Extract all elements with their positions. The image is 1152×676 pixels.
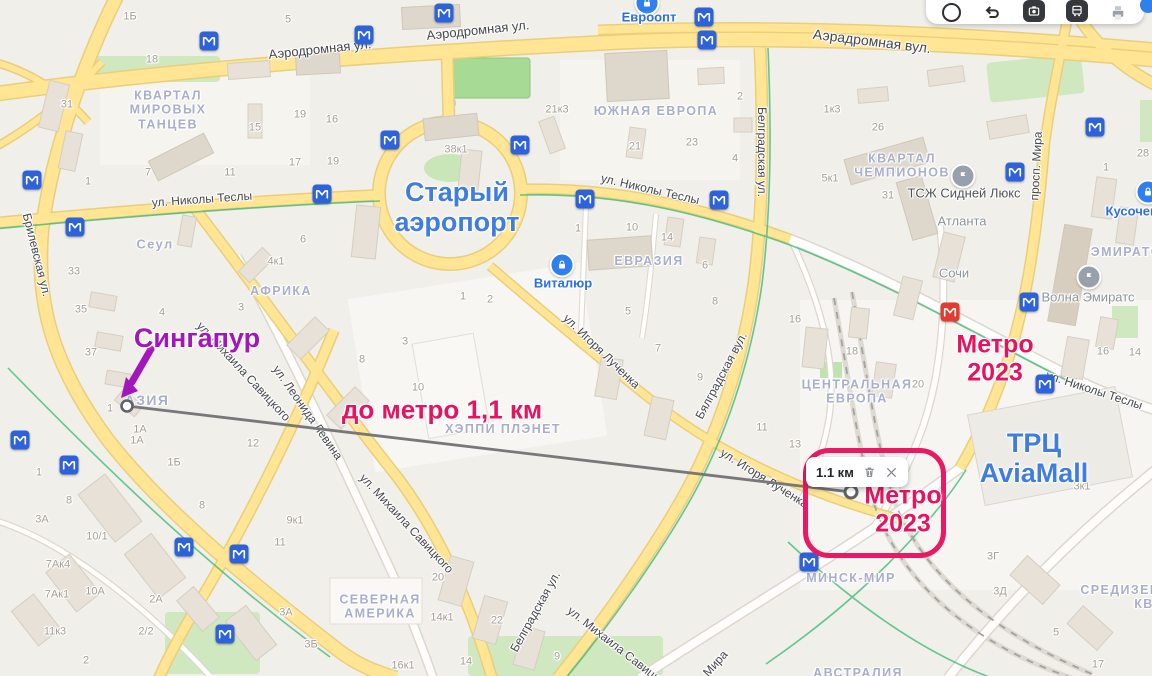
close-icon[interactable] — [885, 466, 898, 479]
panorama-icon[interactable] — [1023, 0, 1045, 22]
metro-icon[interactable] — [1036, 375, 1055, 394]
flag-icon[interactable] — [1077, 265, 1102, 290]
metro-icon[interactable] — [313, 185, 332, 204]
metro-icon[interactable] — [216, 625, 235, 644]
metro-icon[interactable] — [381, 131, 400, 150]
ruler-distance: 1.1 км — [816, 465, 854, 480]
flag-icon[interactable] — [951, 164, 976, 189]
routes-icon[interactable] — [981, 2, 1003, 22]
metro-icon[interactable] — [698, 31, 717, 50]
map-screen: Аэродромная ул.Аэродромная ул.Аэрадромна… — [0, 0, 1152, 676]
to-metro-annotation: до метро 1,1 км — [342, 396, 542, 425]
help-button[interactable] — [1140, 0, 1152, 13]
ruler-tooltip: 1.1 км — [806, 457, 908, 487]
metro-icon[interactable] — [230, 545, 249, 564]
map-toolbar — [926, 0, 1144, 24]
metro-icon[interactable] — [355, 26, 374, 45]
metro-icon[interactable] — [800, 553, 819, 572]
metro-icon[interactable] — [60, 456, 79, 475]
metro-icon[interactable] — [576, 190, 595, 209]
metro-icon[interactable] — [1006, 163, 1025, 182]
metro-icon[interactable] — [66, 218, 85, 237]
metro-icon[interactable] — [435, 4, 454, 23]
basket-icon[interactable] — [550, 253, 575, 278]
metro-icon[interactable] — [511, 136, 530, 155]
metro-icon[interactable] — [200, 32, 219, 51]
singapore-annotation: Сингапур — [134, 324, 260, 354]
metro-icon[interactable] — [1020, 293, 1039, 312]
trash-icon[interactable] — [863, 465, 876, 479]
print-icon[interactable] — [1108, 4, 1128, 22]
metro-icon[interactable] — [23, 171, 42, 190]
metro-2023-box-annotation: Метро 2023 — [864, 483, 941, 538]
metro-icon[interactable] — [710, 191, 729, 210]
traffic-icon[interactable] — [942, 3, 961, 22]
metro-icon[interactable] — [695, 8, 714, 27]
metro-icon[interactable] — [11, 431, 30, 450]
metro-icon[interactable] — [1086, 118, 1105, 137]
transport-icon[interactable] — [1066, 0, 1088, 22]
metro-2023-ne-annotation: Метро 2023 — [956, 332, 1033, 387]
metro-icon[interactable] — [941, 303, 960, 322]
metro-icon[interactable] — [175, 538, 194, 557]
